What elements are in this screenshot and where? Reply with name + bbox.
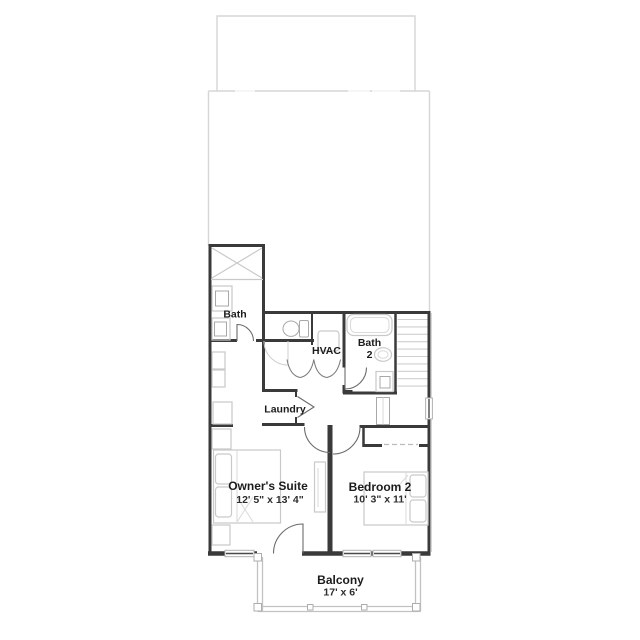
bath-label: Bath [223,309,246,321]
bath2-toilet-icon [376,372,393,392]
bath2-door-arc [345,368,367,390]
walls [208,244,431,556]
balcony-label: Balcony [317,573,364,587]
shower-icon [211,248,263,280]
floor-plan: Bath HVAC Bath 2 Laundry Owner's Suite 1… [0,0,640,640]
closet-shelves [212,352,232,424]
hvac-label: HVAC [312,345,341,357]
owners-suite-dimensions: 12' 5" x 13' 4" [236,494,304,506]
laundry-label: Laundry [264,404,306,416]
bath-door-arc [237,325,254,342]
hall-linen-closet [377,398,390,425]
toilet-icon [283,321,309,338]
hvac-bifold-doors [287,360,341,378]
balcony-dimensions: 17' x 6' [323,587,357,599]
owners-suite-label: Owner's Suite [228,479,308,493]
bedroom2-window-right [373,550,401,556]
stair-landing-window [426,398,433,419]
owners-dresser [315,462,326,512]
bathtub-icon [347,315,392,336]
balcony-door-arc [274,524,304,554]
floor-plan-page: Bath HVAC Bath 2 Laundry Owner's Suite 1… [0,0,640,640]
bath2-sink-icon [375,348,392,362]
bath2-label: Bath [358,337,381,349]
owners-suite-door-arc [305,427,331,453]
stairs-icon [398,320,428,387]
owners-suite-window [225,550,254,556]
bedroom2-dimensions: 10' 3" x 11' [353,494,406,506]
bedroom2-window-left [343,550,371,556]
bedroom2-label: Bedroom 2 [349,480,412,494]
bedroom2-door-arc [333,427,360,454]
doors [237,325,367,554]
toilet-room-door-arc [264,341,288,365]
bath2-label-line2: 2 [367,349,373,361]
